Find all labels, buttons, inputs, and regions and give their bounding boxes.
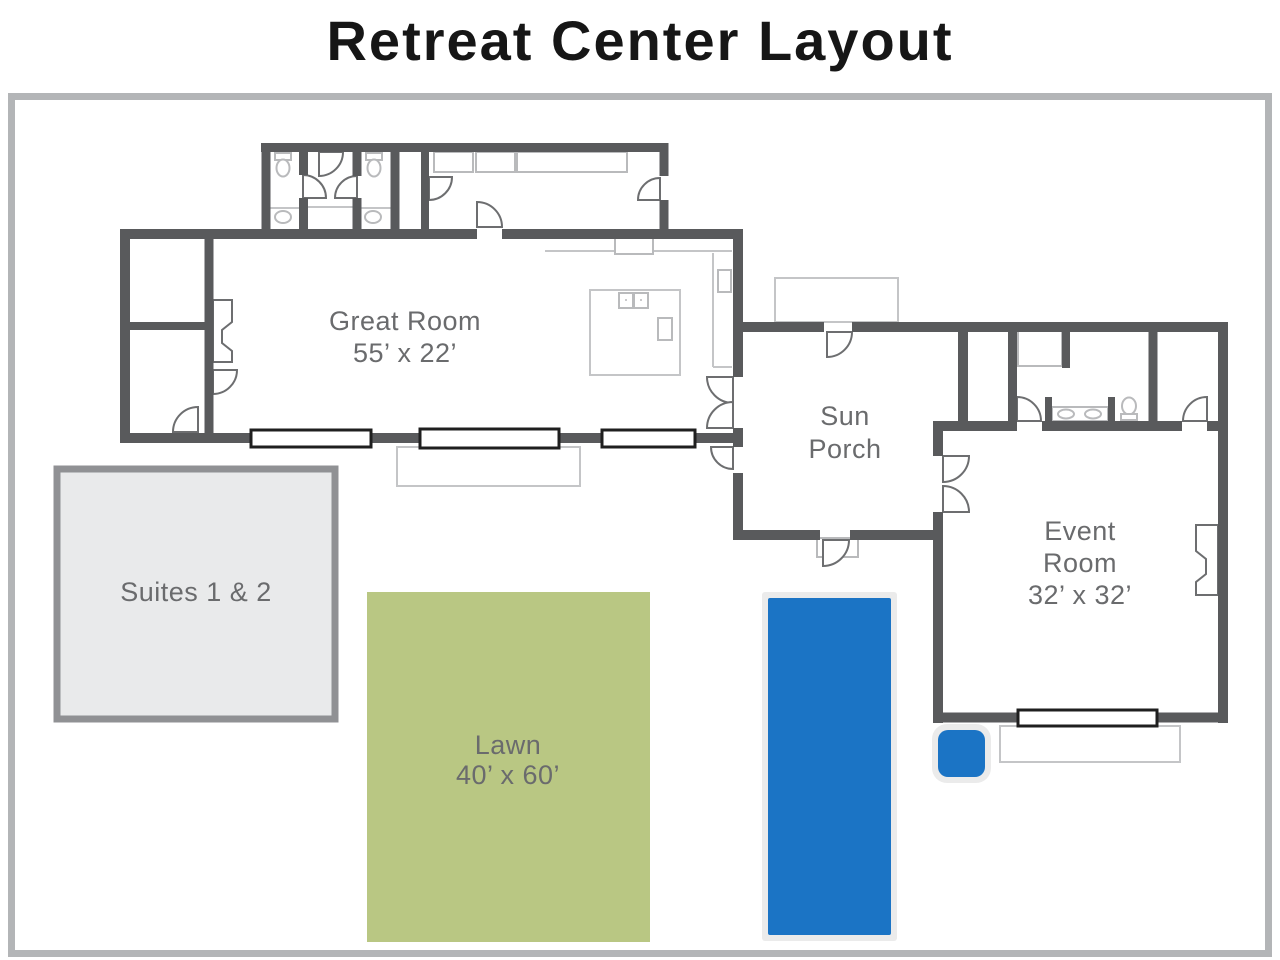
door-arc [711,447,733,469]
pool-water [768,598,891,935]
sink-icon [1058,410,1074,419]
great-room-label: Great Room [329,306,481,336]
burner-dot [640,299,642,301]
door-arc [638,178,660,200]
door-arc [319,152,343,176]
shelf [476,152,515,172]
burner-dot [625,299,627,301]
door-arc [1183,397,1207,421]
door-arc [429,177,452,200]
door-arc [213,370,237,394]
kitchen-area [545,236,732,375]
deck-outline [775,278,898,322]
lawn-label: Lawn [475,730,542,760]
sun-porch-label: Sun [820,401,870,431]
floor-plan: Great Room 55’ x 22’ Sun Porch Event Roo… [0,0,1280,960]
door-arc [823,540,849,566]
swimming-pool [762,592,897,941]
door-arc [477,202,502,227]
hot-tub-water [938,730,985,777]
fireplace-icon [213,300,232,362]
closet-outline [1018,328,1062,366]
window [251,430,371,447]
door-arc [1017,397,1041,421]
french-door-arc [707,377,733,403]
sink-icon [365,211,381,223]
door-arc [303,175,326,198]
toilet-base-icon [1121,414,1137,420]
french-door-arc [707,402,733,428]
door-arc [335,176,357,198]
door-arc [827,332,852,357]
toilet-icon [277,160,290,177]
french-door-arc [943,456,969,482]
event-room-label: Event [1044,516,1116,546]
patio-outline-event-room [1000,726,1180,762]
sink-icon [1085,410,1101,419]
storage-shelves [434,152,627,172]
suites-label: Suites 1 & 2 [120,577,272,607]
window [1018,710,1157,726]
shelf [434,152,473,172]
door-arc [173,407,198,432]
island-sink-icon [658,318,672,340]
toilet-icon [1122,398,1136,415]
window [602,430,695,447]
shelf [517,152,627,172]
great-room-dimensions: 55’ x 22’ [353,338,457,368]
patio-outline-great-room [397,447,580,486]
sink-icon [275,211,291,223]
event-room-dimensions: 32’ x 32’ [1028,580,1132,610]
toilet-icon [368,160,381,177]
window [420,429,559,448]
hot-tub [932,724,991,783]
fireplace-icon [1196,525,1218,595]
event-room-label-line2: Room [1043,548,1117,578]
retreat-center-layout-page: Retreat Center Layout [0,0,1280,960]
french-door-arc [943,486,969,512]
sun-porch-label-line2: Porch [808,434,881,464]
lawn-dimensions: 40’ x 60’ [456,760,560,790]
kitchen-appliance-icon [718,270,731,292]
